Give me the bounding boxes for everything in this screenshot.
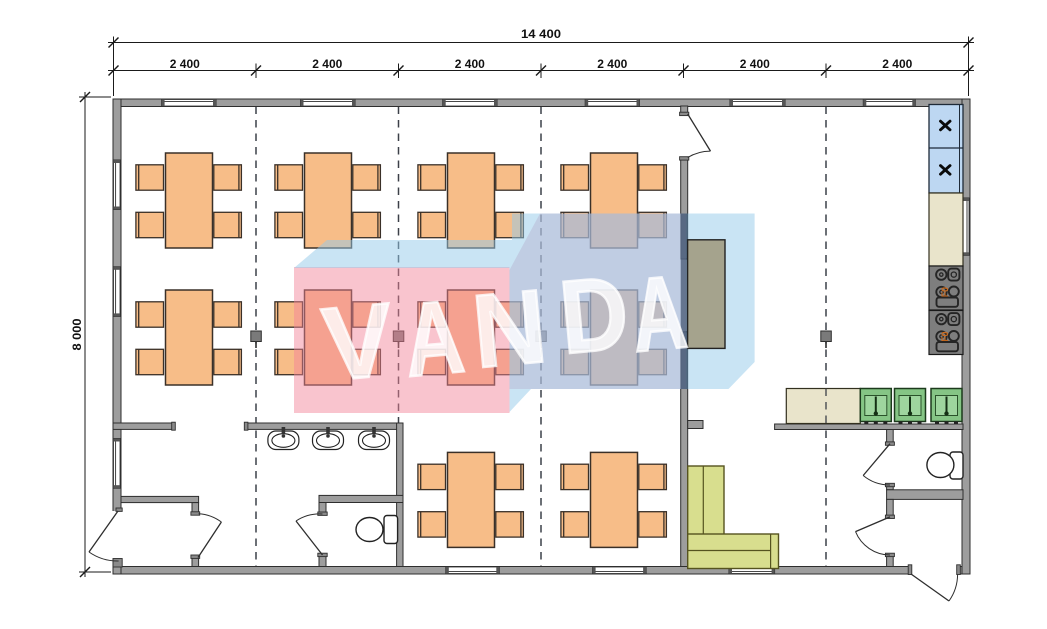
- svg-text:2 400: 2 400: [455, 57, 485, 71]
- svg-text:2 400: 2 400: [170, 57, 200, 71]
- svg-text:2 400: 2 400: [882, 57, 912, 71]
- svg-text:8 000: 8 000: [70, 318, 84, 350]
- svg-text:V: V: [318, 282, 398, 404]
- svg-text:A: A: [400, 278, 469, 399]
- svg-text:2 400: 2 400: [312, 57, 342, 71]
- svg-text:14 400: 14 400: [521, 27, 561, 41]
- svg-text:N: N: [468, 267, 551, 390]
- svg-text:2 400: 2 400: [597, 57, 627, 71]
- svg-text:2 400: 2 400: [740, 57, 770, 71]
- svg-text:A: A: [627, 254, 691, 374]
- svg-text:D: D: [555, 253, 633, 375]
